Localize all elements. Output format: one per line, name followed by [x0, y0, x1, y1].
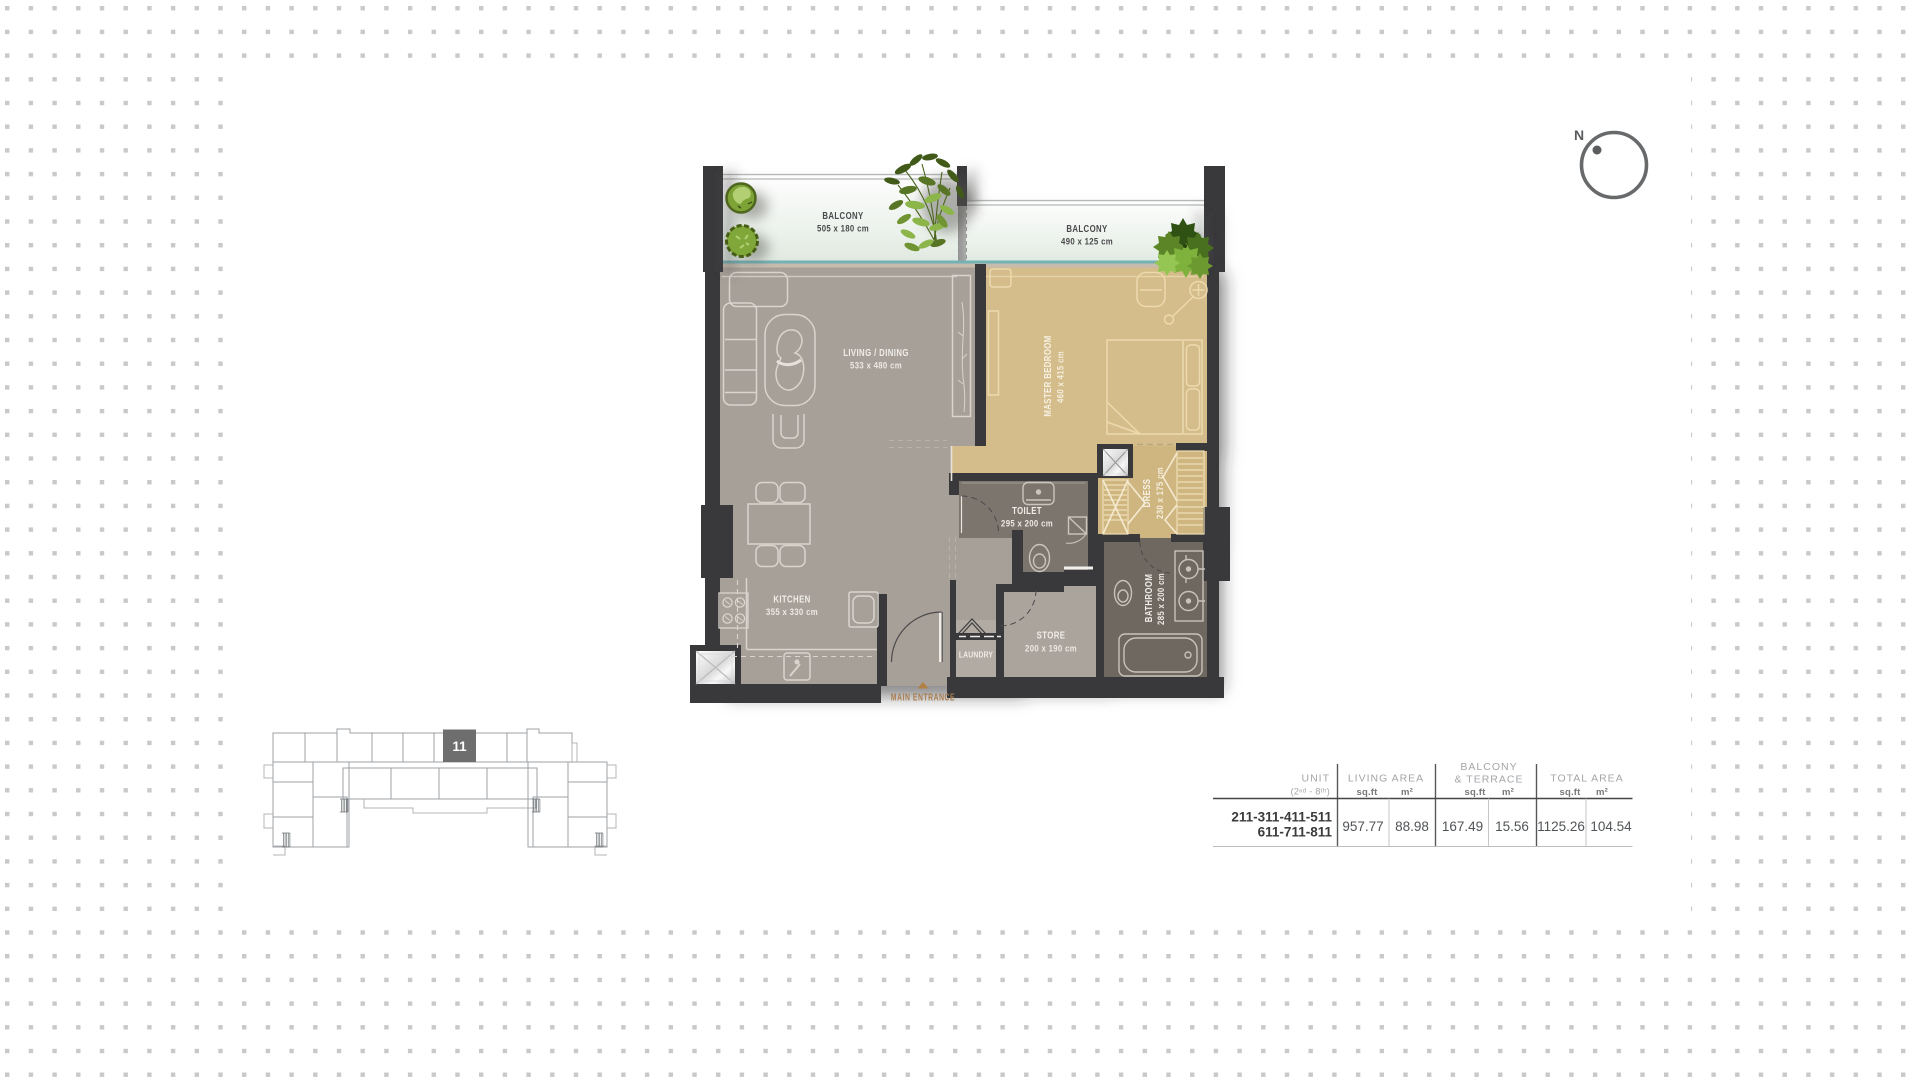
svg-text:DRESS: DRESS — [1141, 479, 1152, 508]
svg-text:104.54: 104.54 — [1590, 819, 1632, 834]
svg-text:15.56: 15.56 — [1495, 819, 1529, 834]
svg-text:sq.ft: sq.ft — [1559, 787, 1581, 798]
svg-text:BALCONY: BALCONY — [1066, 223, 1107, 234]
svg-text:957.77: 957.77 — [1342, 819, 1383, 834]
svg-text:TOTAL AREA: TOTAL AREA — [1550, 773, 1623, 785]
svg-text:LIVING AREA: LIVING AREA — [1348, 773, 1424, 785]
svg-text:611-711-811: 611-711-811 — [1258, 825, 1333, 840]
svg-text:sq.ft: sq.ft — [1464, 787, 1486, 798]
svg-text:UNIT: UNIT — [1302, 773, 1331, 785]
svg-text:m²: m² — [1502, 787, 1514, 798]
svg-text:BALCONY: BALCONY — [1460, 761, 1517, 773]
svg-text:230 x 175 cm: 230 x 175 cm — [1154, 467, 1165, 519]
svg-text:N: N — [1574, 127, 1584, 143]
svg-text:295 x 200 cm: 295 x 200 cm — [1001, 518, 1053, 529]
svg-text:BATHROOM: BATHROOM — [1143, 574, 1154, 622]
svg-text:MASTER BEDROOM: MASTER BEDROOM — [1042, 335, 1053, 416]
svg-text:490 x 125 cm: 490 x 125 cm — [1061, 236, 1113, 247]
svg-text:m²: m² — [1596, 787, 1608, 798]
svg-text:355 x 330 cm: 355 x 330 cm — [766, 606, 818, 617]
svg-text:285 x 200 cm: 285 x 200 cm — [1155, 573, 1166, 625]
svg-text:533 x 480 cm: 533 x 480 cm — [850, 360, 902, 371]
svg-text:11: 11 — [452, 739, 467, 754]
svg-text:sq.ft: sq.ft — [1356, 787, 1378, 798]
svg-text:LIVING / DINING: LIVING / DINING — [843, 347, 909, 358]
svg-text:BALCONY: BALCONY — [822, 210, 863, 221]
svg-text:88.98: 88.98 — [1395, 819, 1429, 834]
svg-text:167.49: 167.49 — [1442, 819, 1483, 834]
svg-text:TOILET: TOILET — [1012, 505, 1042, 516]
svg-text:(2ⁿᵈ - 8ᵗʰ): (2ⁿᵈ - 8ᵗʰ) — [1291, 787, 1330, 797]
svg-text:& TERRACE: & TERRACE — [1455, 774, 1524, 786]
svg-text:LAUNDRY: LAUNDRY — [959, 650, 993, 660]
svg-text:505 x 180 cm: 505 x 180 cm — [817, 223, 869, 234]
svg-text:211-311-411-511: 211-311-411-511 — [1231, 810, 1332, 825]
svg-text:m²: m² — [1401, 787, 1413, 798]
svg-text:1125.26: 1125.26 — [1537, 819, 1585, 834]
svg-text:STORE: STORE — [1037, 630, 1066, 641]
svg-text:460 x 415 cm: 460 x 415 cm — [1055, 351, 1066, 403]
svg-text:KITCHEN: KITCHEN — [773, 594, 810, 605]
svg-text:200 x 190 cm: 200 x 190 cm — [1025, 643, 1077, 654]
svg-text:MAIN ENTRANCE: MAIN ENTRANCE — [891, 691, 955, 703]
